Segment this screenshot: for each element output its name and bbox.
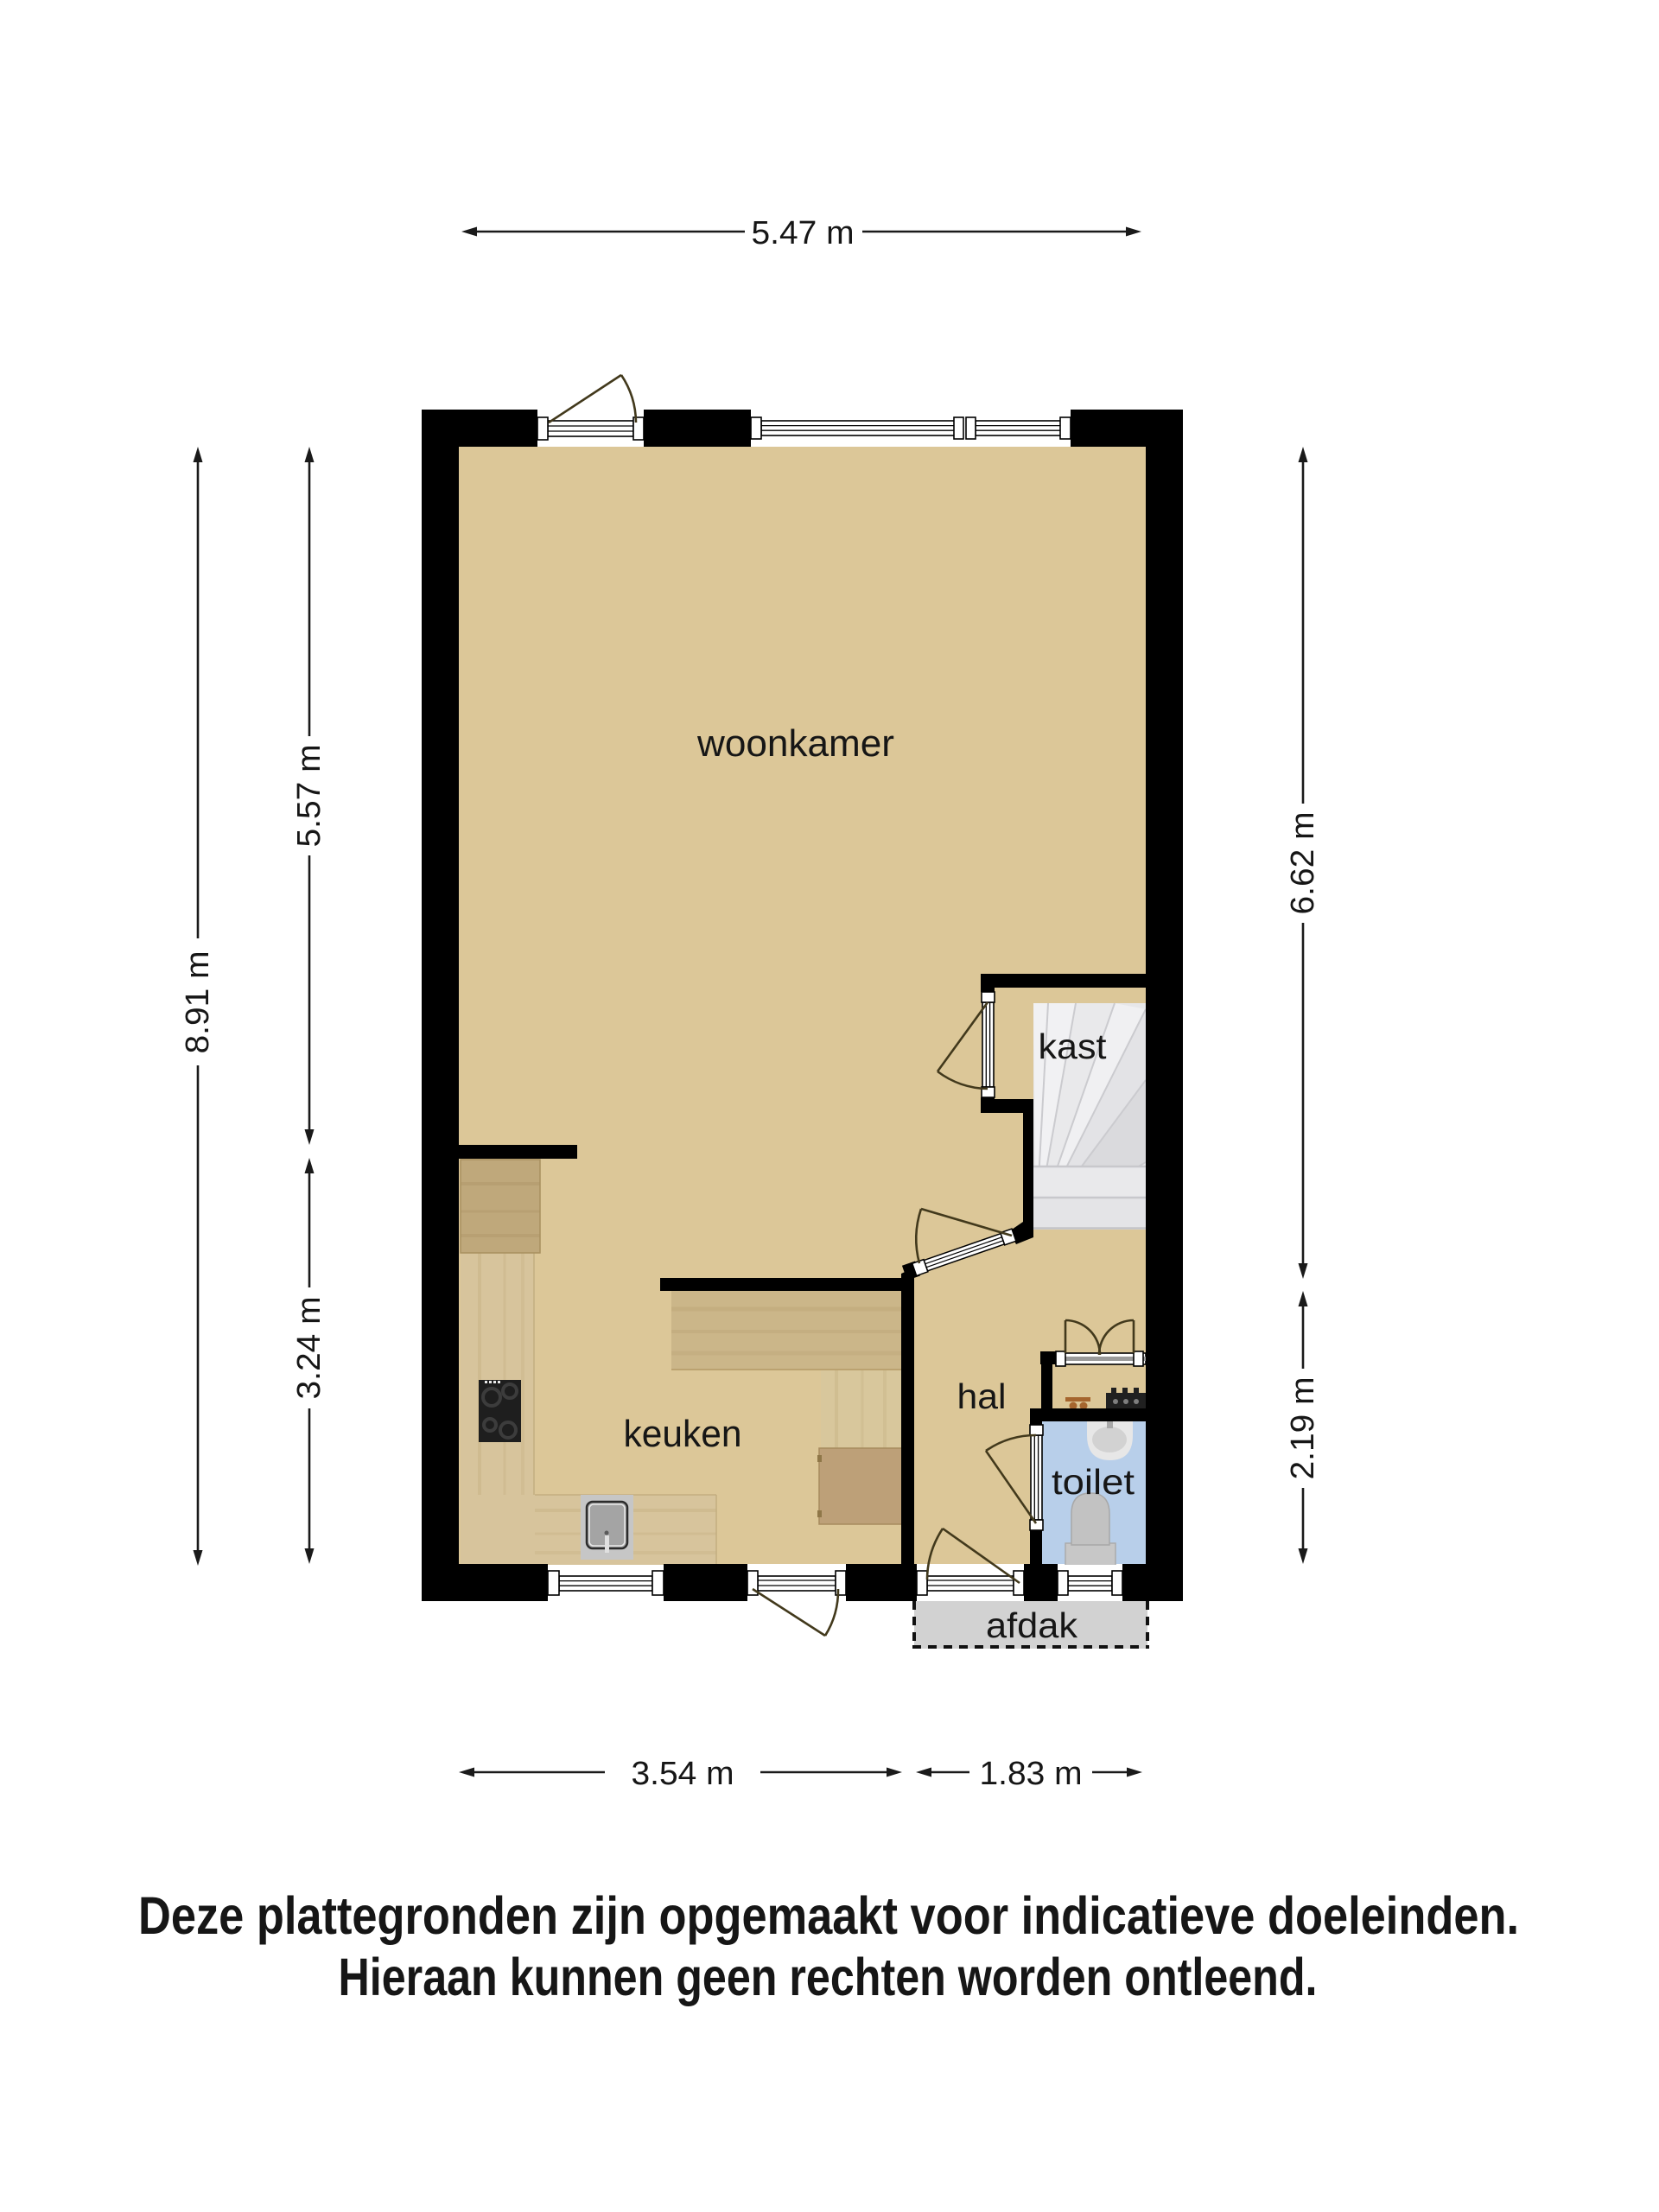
svg-text:2.19 m: 2.19 m [1285, 1377, 1321, 1480]
svg-text:5.57 m: 5.57 m [291, 745, 327, 848]
svg-text:6.62 m: 6.62 m [1285, 812, 1321, 915]
svg-text:8.91 m: 8.91 m [180, 951, 216, 1054]
svg-text:5.47 m: 5.47 m [752, 215, 855, 251]
svg-text:3.54 m: 3.54 m [632, 1756, 734, 1792]
svg-text:woonkamer: woonkamer [696, 722, 894, 765]
svg-text:keuken: keuken [624, 1413, 742, 1455]
svg-text:hal: hal [957, 1376, 1007, 1416]
svg-text:toilet: toilet [1052, 1462, 1135, 1502]
svg-text:kast: kast [1039, 1027, 1108, 1066]
svg-text:Deze plattegronden zijn opgema: Deze plattegronden zijn opgemaakt voor i… [138, 1886, 1519, 1945]
svg-text:3.24 m: 3.24 m [291, 1297, 327, 1400]
svg-text:afdak: afdak [986, 1605, 1078, 1645]
svg-text:1.83 m: 1.83 m [980, 1756, 1083, 1792]
svg-text:Hieraan kunnen geen rechten wo: Hieraan kunnen geen rechten worden ontle… [339, 1948, 1318, 2006]
